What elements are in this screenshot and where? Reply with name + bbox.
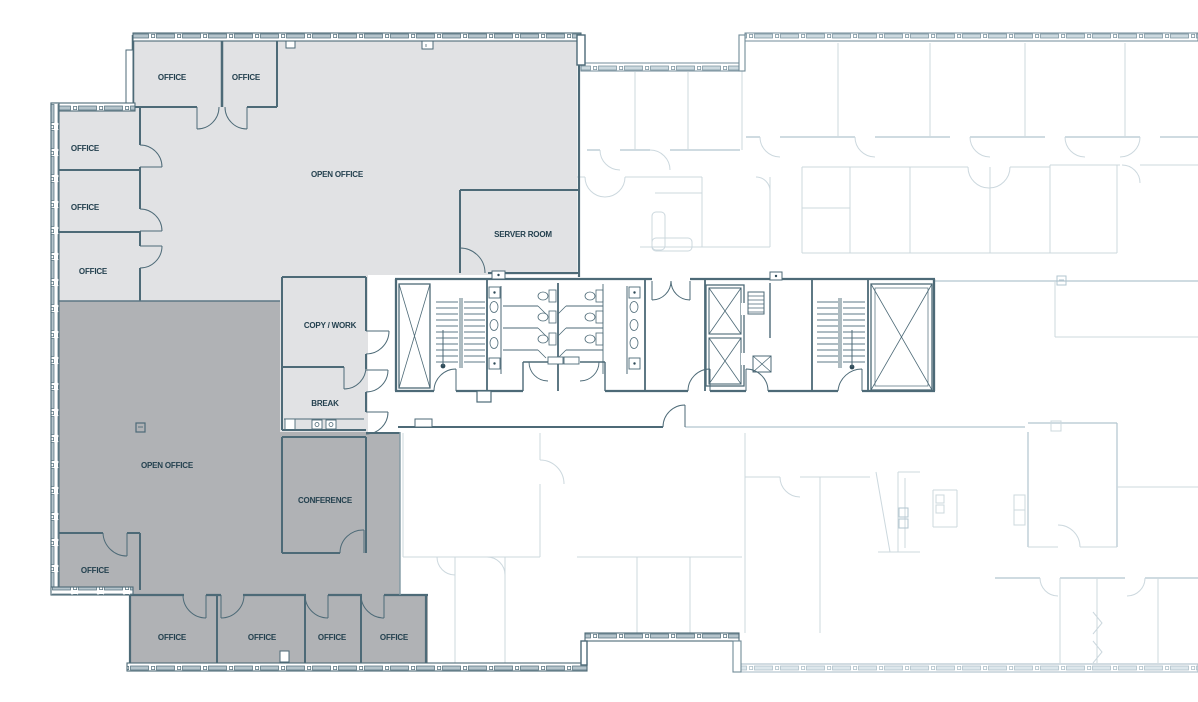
room-label-office-west-3: OFFICE — [79, 267, 108, 276]
shaft-east — [871, 284, 932, 390]
room-label-office-top-2: OFFICE — [232, 73, 261, 82]
window-band-west — [51, 103, 59, 591]
room-label-conference: CONFERENCE — [298, 496, 353, 505]
room-label-server-room: SERVER ROOM — [494, 230, 552, 239]
window-band-north-tower — [745, 33, 1198, 41]
window-band-north — [133, 33, 581, 41]
room-label-break: BREAK — [311, 399, 339, 408]
window-band-south — [127, 663, 587, 671]
window-band-south-mid — [585, 633, 739, 641]
room-label-copy-work: COPY / WORK — [304, 321, 357, 330]
elevator-bank — [706, 285, 746, 386]
floor-plan-svg: OFFICE OFFICE OFFICE OFFICE OFFICE OPEN … — [0, 0, 1198, 702]
room-label-open-office-upper: OPEN OFFICE — [311, 170, 364, 179]
window-band-south-east — [739, 664, 1198, 672]
window-band-northwest-sill — [51, 103, 135, 111]
room-label-office-south-4: OFFICE — [380, 633, 409, 642]
room-label-office-west-1: OFFICE — [71, 144, 100, 153]
window-band-north-step — [581, 63, 745, 71]
room-label-office-southwest: OFFICE — [81, 566, 110, 575]
window-band-southwest — [51, 587, 133, 595]
floor-plan-canvas: OFFICE OFFICE OFFICE OFFICE OFFICE OPEN … — [0, 0, 1198, 702]
room-label-office-south-3: OFFICE — [318, 633, 347, 642]
room-label-office-west-2: OFFICE — [71, 203, 100, 212]
room-label-office-south-1: OFFICE — [158, 633, 187, 642]
room-label-office-south-2: OFFICE — [248, 633, 277, 642]
room-label-office-top-1: OFFICE — [158, 73, 187, 82]
room-label-open-office-lower: OPEN OFFICE — [141, 461, 194, 470]
